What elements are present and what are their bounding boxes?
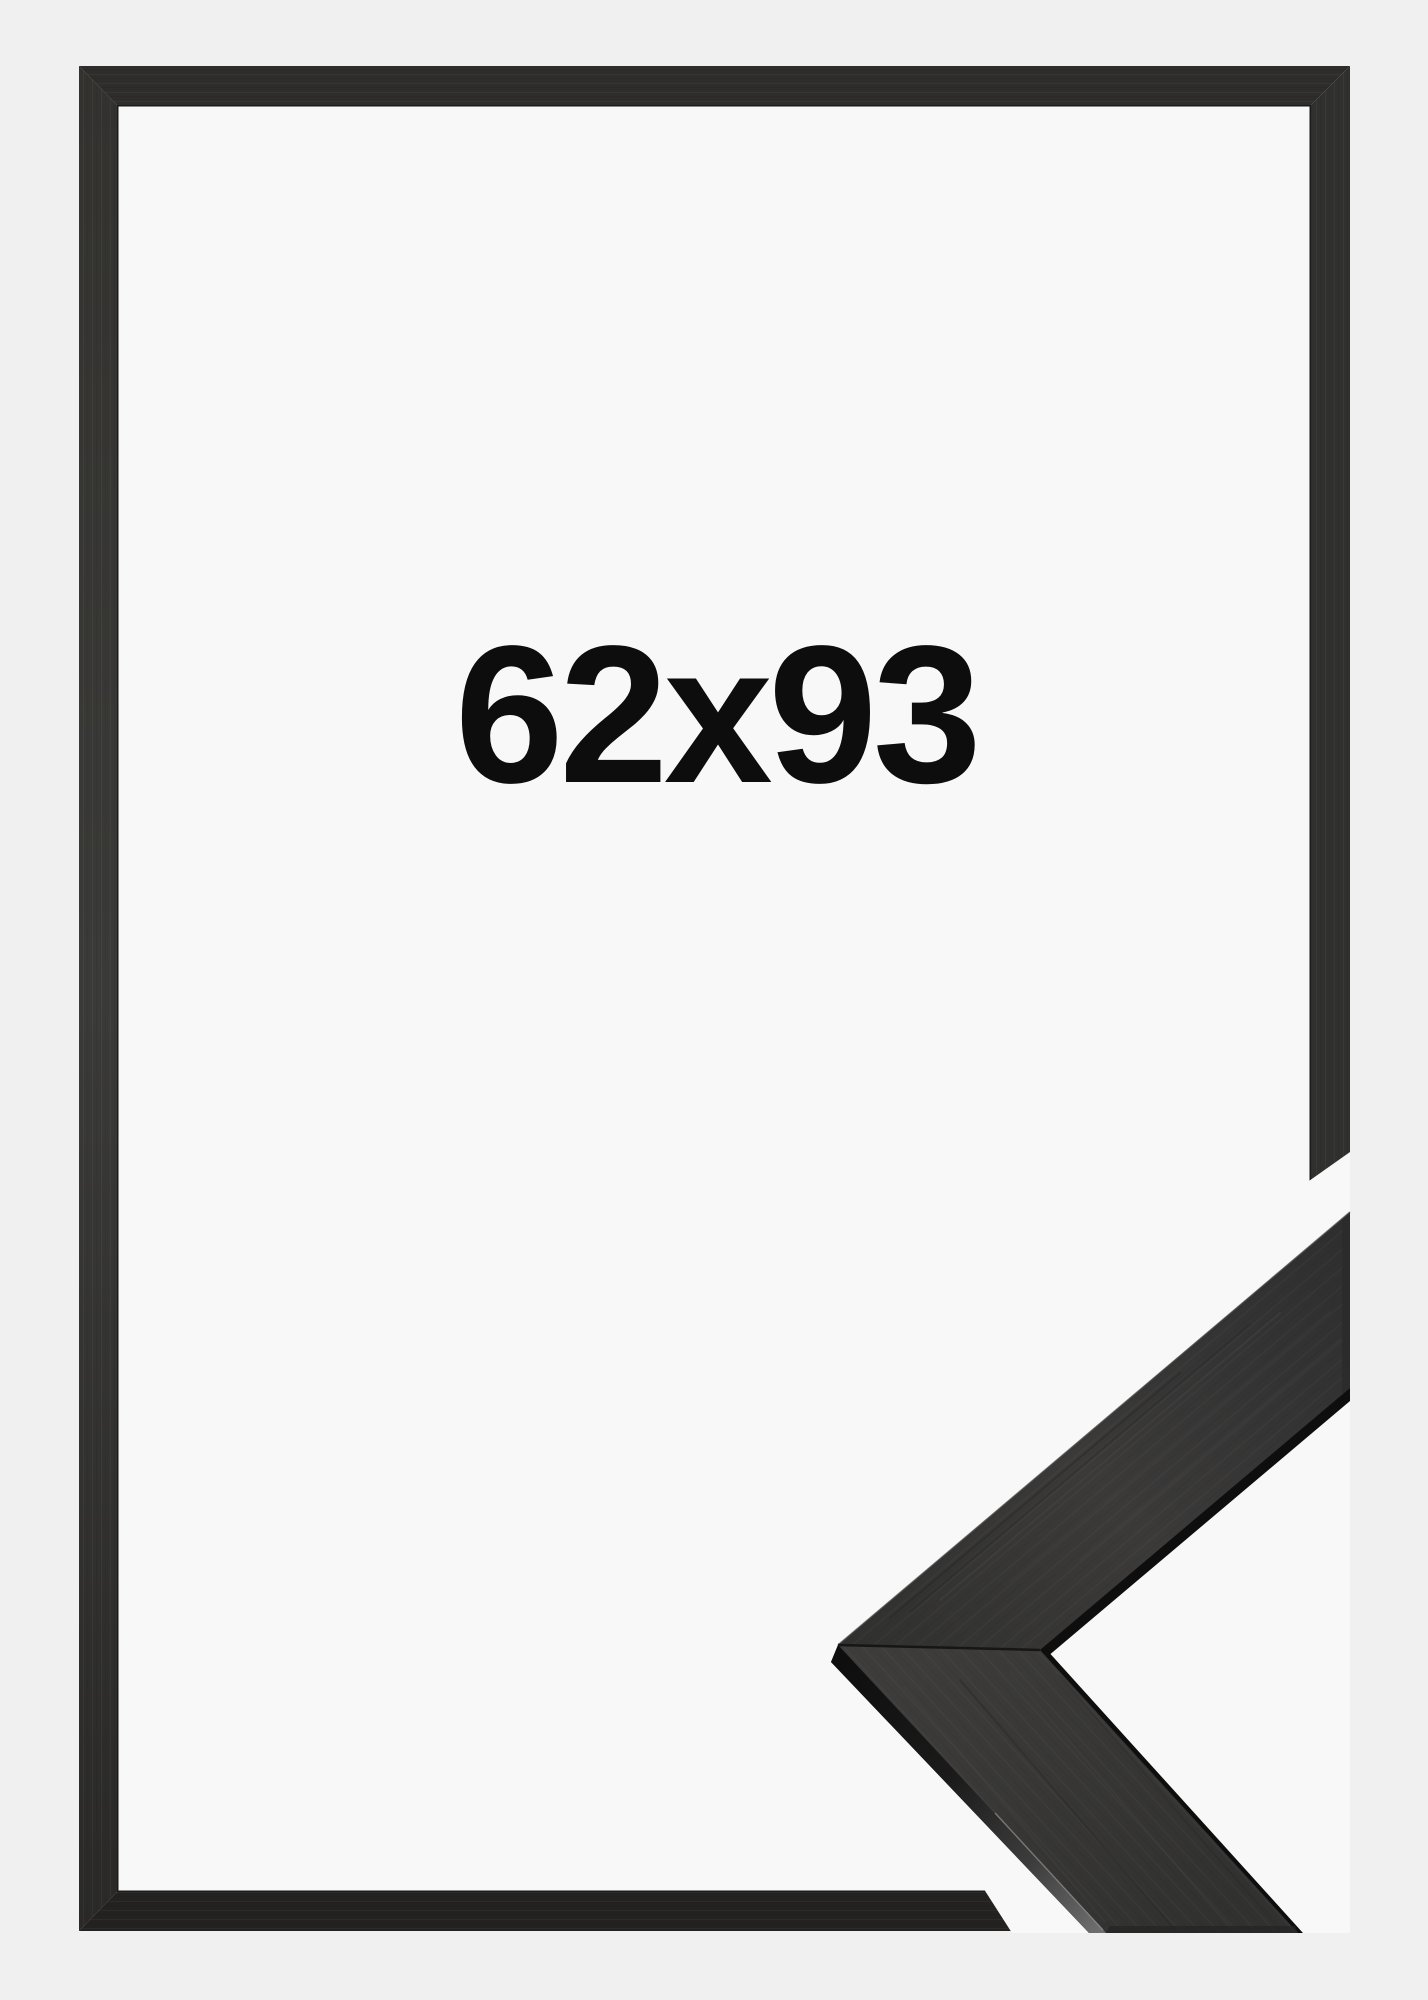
svg-text:62x93: 62x93 xyxy=(455,605,978,824)
